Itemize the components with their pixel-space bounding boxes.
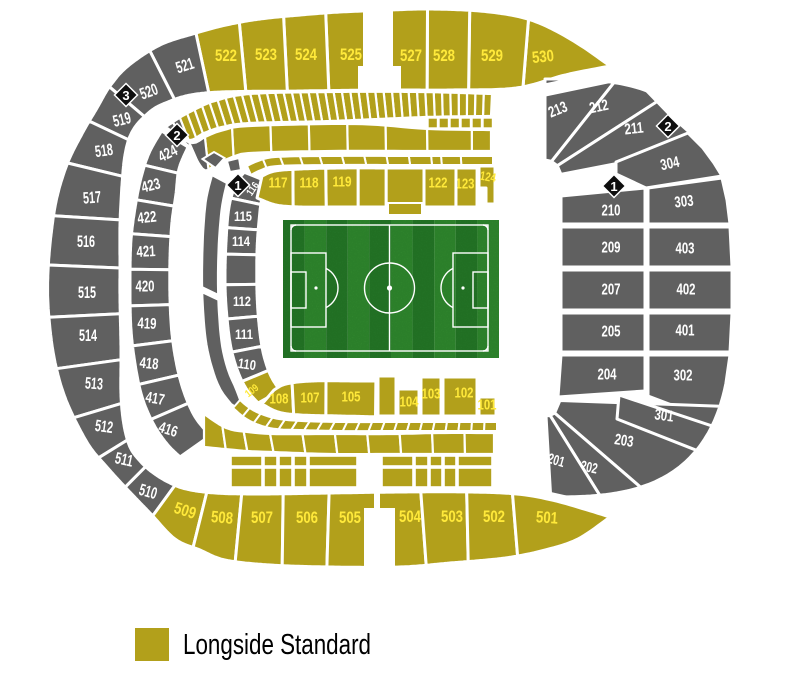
svg-text:527: 527 [400, 47, 422, 65]
svg-text:210: 210 [602, 203, 621, 220]
svg-text:112: 112 [233, 293, 251, 309]
svg-text:419: 419 [137, 315, 157, 333]
svg-text:524: 524 [295, 46, 318, 64]
svg-text:123: 123 [456, 176, 475, 193]
svg-text:516: 516 [77, 233, 95, 251]
svg-text:105: 105 [342, 389, 361, 406]
svg-text:517: 517 [82, 188, 101, 207]
svg-text:302: 302 [674, 368, 693, 385]
svg-text:209: 209 [602, 240, 621, 257]
svg-text:506: 506 [296, 509, 318, 527]
svg-text:422: 422 [137, 209, 158, 228]
svg-text:205: 205 [602, 324, 621, 341]
svg-text:420: 420 [136, 279, 155, 296]
svg-text:122: 122 [429, 175, 448, 192]
svg-text:523: 523 [255, 46, 277, 64]
svg-text:530: 530 [531, 47, 555, 67]
svg-text:508: 508 [210, 508, 233, 528]
svg-text:525: 525 [340, 46, 362, 64]
svg-text:101: 101 [478, 397, 497, 414]
svg-text:518: 518 [94, 141, 114, 161]
svg-text:529: 529 [481, 47, 503, 65]
svg-text:301: 301 [654, 406, 675, 425]
svg-text:504: 504 [399, 508, 422, 526]
svg-text:514: 514 [79, 327, 98, 345]
svg-text:505: 505 [339, 509, 361, 527]
svg-text:103: 103 [422, 386, 441, 403]
svg-text:211: 211 [624, 120, 645, 139]
svg-text:511: 511 [113, 449, 134, 470]
svg-text:204: 204 [598, 367, 617, 384]
svg-text:512: 512 [94, 417, 114, 437]
svg-text:401: 401 [676, 323, 695, 340]
svg-text:104: 104 [400, 394, 419, 411]
svg-text:503: 503 [441, 508, 463, 526]
svg-text:207: 207 [602, 282, 621, 299]
svg-text:501: 501 [535, 508, 558, 527]
svg-text:119: 119 [333, 174, 352, 191]
svg-text:114: 114 [232, 233, 250, 249]
svg-text:403: 403 [676, 241, 695, 258]
svg-text:528: 528 [433, 47, 455, 65]
svg-text:102: 102 [455, 385, 474, 402]
svg-text:115: 115 [234, 208, 252, 224]
svg-text:107: 107 [301, 390, 320, 407]
svg-text:1: 1 [234, 178, 241, 193]
svg-text:502: 502 [483, 508, 505, 526]
svg-text:108: 108 [270, 391, 289, 408]
svg-text:118: 118 [300, 175, 319, 192]
svg-text:303: 303 [674, 193, 695, 212]
svg-text:418: 418 [139, 355, 160, 374]
svg-text:110: 110 [237, 355, 257, 373]
svg-text:1: 1 [610, 179, 617, 194]
svg-text:513: 513 [84, 374, 103, 393]
svg-text:417: 417 [144, 389, 166, 409]
svg-text:2: 2 [173, 128, 180, 143]
svg-text:3: 3 [122, 88, 129, 103]
svg-text:522: 522 [215, 47, 237, 65]
svg-text:Longside Standard: Longside Standard [183, 629, 371, 661]
svg-text:124: 124 [479, 169, 497, 186]
svg-text:2: 2 [664, 119, 671, 134]
svg-text:117: 117 [269, 175, 288, 192]
svg-text:402: 402 [677, 282, 696, 299]
svg-text:421: 421 [136, 243, 156, 261]
svg-text:203: 203 [613, 431, 635, 451]
svg-text:111: 111 [235, 326, 253, 342]
svg-text:507: 507 [251, 509, 273, 527]
svg-text:515: 515 [78, 284, 96, 302]
